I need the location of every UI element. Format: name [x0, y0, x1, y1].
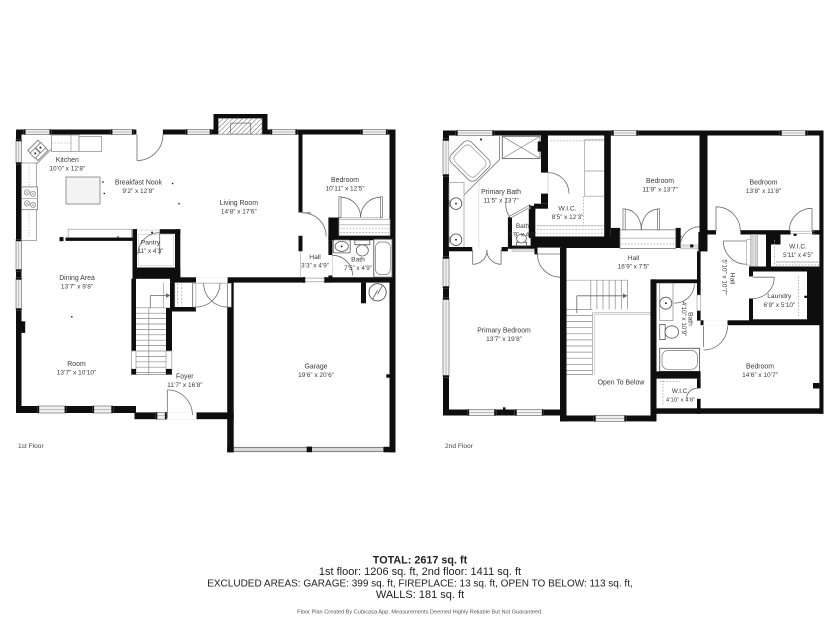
svg-text:Bedroom: Bedroom: [331, 177, 359, 184]
svg-text:16’9” x 7’5”: 16’9” x 7’5”: [618, 264, 650, 271]
svg-text:Bedroom: Bedroom: [646, 178, 674, 185]
svg-text:Floor Plan Created By Cubicasa: Floor Plan Created By Cubicasa App. Meas…: [297, 610, 543, 616]
svg-text:10’11” x 12’5”: 10’11” x 12’5”: [326, 186, 365, 193]
svg-text:Bedroom: Bedroom: [746, 364, 774, 371]
svg-text:TOTAL: 2617 sq. ft: TOTAL: 2617 sq. ft: [373, 555, 468, 567]
svg-text:8’5” x 12’3”: 8’5” x 12’3”: [552, 214, 584, 221]
svg-text:11’7” x 16’8”: 11’7” x 16’8”: [167, 382, 202, 389]
svg-text:13’7” x 19’8”: 13’7” x 19’8”: [486, 336, 522, 343]
svg-text:11” x 4’3”: 11” x 4’3”: [138, 248, 164, 255]
svg-text:9’2” x 12’8”: 9’2” x 12’8”: [122, 188, 154, 195]
svg-text:13’7” x 9’8”: 13’7” x 9’8”: [61, 284, 93, 291]
svg-text:13’7” x 10’10”: 13’7” x 10’10”: [57, 370, 96, 377]
svg-text:Primary Bedroom: Primary Bedroom: [477, 328, 531, 335]
svg-text:Bedroom: Bedroom: [750, 180, 778, 187]
svg-text:4’10” x 10’9”: 4’10” x 10’9”: [680, 302, 687, 337]
svg-text:Room: Room: [67, 361, 86, 368]
svg-text:4’10” x 4’8”: 4’10” x 4’8”: [666, 398, 695, 404]
svg-text:Living Room: Living Room: [220, 200, 259, 207]
svg-text:19’6” x 20’6”: 19’6” x 20’6”: [298, 372, 334, 379]
svg-text:Kitchen: Kitchen: [56, 157, 79, 164]
svg-text:EXCLUDED AREAS: GARAGE: 399 sq: EXCLUDED AREAS: GARAGE: 399 sq. ft, FIRE…: [207, 579, 633, 590]
svg-text:Breakfast Nook: Breakfast Nook: [115, 179, 163, 186]
svg-text:3’9” x 4’0”: 3’9” x 4’0”: [509, 232, 536, 239]
svg-text:Laundry: Laundry: [767, 293, 792, 300]
svg-text:Primary Bath: Primary Bath: [481, 189, 521, 196]
svg-text:10’0” x 12’8”: 10’0” x 12’8”: [49, 166, 85, 173]
svg-text:2nd Floor: 2nd Floor: [445, 443, 474, 450]
svg-text:Dining Area: Dining Area: [59, 275, 95, 282]
svg-text:5’11” x 4’5”: 5’11” x 4’5”: [783, 252, 813, 259]
svg-text:1st floor: 1206 sq. ft, 2nd fl: 1st floor: 1206 sq. ft, 2nd floor: 1411 …: [319, 566, 521, 578]
svg-text:Pantry: Pantry: [141, 240, 161, 247]
svg-text:Open To Below: Open To Below: [598, 380, 645, 387]
svg-text:11’9” x 13’7”: 11’9” x 13’7”: [642, 187, 677, 194]
svg-text:Garage: Garage: [305, 364, 328, 371]
svg-text:W.I.C.: W.I.C.: [672, 388, 689, 395]
svg-text:13’8” x 11’8”: 13’8” x 11’8”: [746, 188, 781, 195]
svg-text:Hall: Hall: [729, 273, 736, 285]
svg-text:W.I.C.: W.I.C.: [558, 206, 576, 213]
svg-text:11’5” x 13’7”: 11’5” x 13’7”: [483, 198, 518, 205]
svg-text:Bath: Bath: [351, 257, 365, 264]
svg-text:5’10” x 10’7”: 5’10” x 10’7”: [721, 259, 728, 294]
svg-text:3’3” x 4’9”: 3’3” x 4’9”: [301, 263, 329, 270]
svg-text:1st Floor: 1st Floor: [18, 443, 44, 450]
svg-text:Foyer: Foyer: [176, 373, 194, 380]
svg-text:Hall: Hall: [628, 255, 640, 262]
svg-text:Hall: Hall: [309, 254, 321, 261]
svg-text:7’5” x 4’9”: 7’5” x 4’9”: [344, 265, 372, 272]
svg-text:W.I.C.: W.I.C.: [789, 244, 807, 251]
svg-text:6’9” x 5’10”: 6’9” x 5’10”: [763, 302, 795, 309]
svg-text:14’8” x 17’6”: 14’8” x 17’6”: [221, 209, 257, 216]
svg-text:14’6” x 10’7”: 14’6” x 10’7”: [742, 372, 778, 379]
svg-text:Bath: Bath: [516, 223, 530, 230]
svg-text:WALLS: 181 sq. ft: WALLS: 181 sq. ft: [376, 589, 464, 601]
